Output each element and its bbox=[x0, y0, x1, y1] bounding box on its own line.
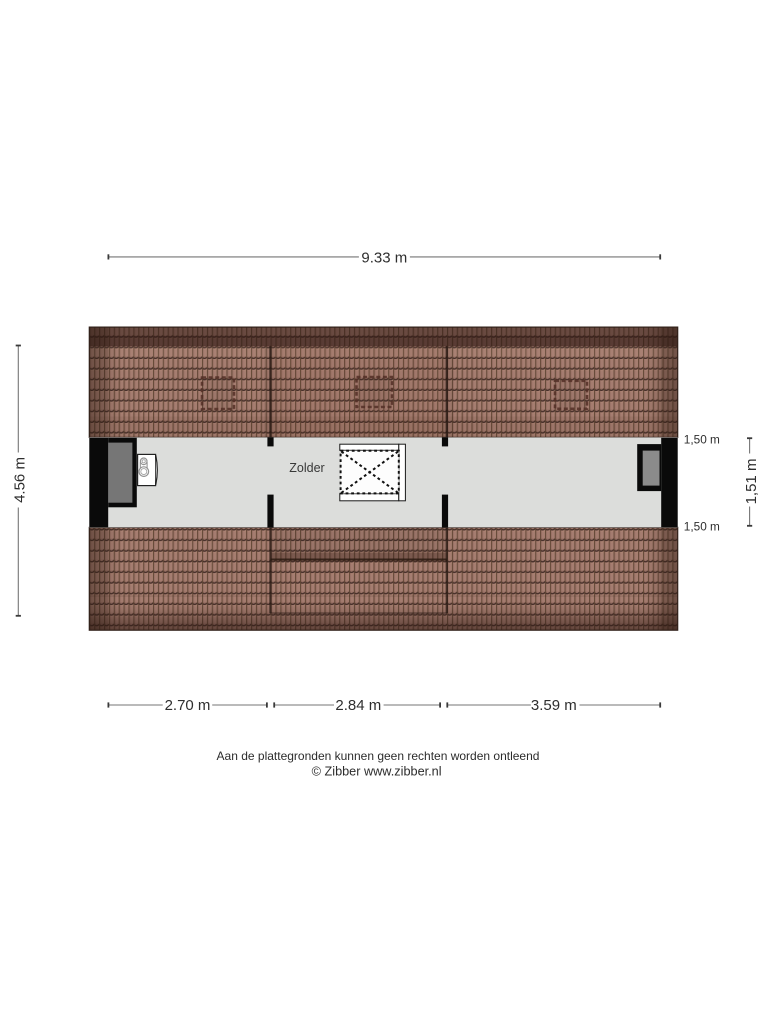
svg-text:3.59 m: 3.59 m bbox=[531, 697, 577, 714]
svg-text:1,50 m: 1,50 m bbox=[684, 520, 720, 534]
svg-text:2.70 m: 2.70 m bbox=[165, 697, 211, 714]
svg-text:Zolder: Zolder bbox=[289, 461, 324, 475]
svg-text:9.33 m: 9.33 m bbox=[361, 250, 407, 267]
svg-text:Aan de plattegronden kunnen ge: Aan de plattegronden kunnen geen rechten… bbox=[217, 749, 540, 763]
svg-text:© Zibber www.zibber.nl: © Zibber www.zibber.nl bbox=[312, 764, 442, 778]
svg-text:4.56 m: 4.56 m bbox=[12, 457, 29, 503]
svg-text:2.84 m: 2.84 m bbox=[335, 697, 381, 714]
svg-text:1,51 m: 1,51 m bbox=[743, 459, 760, 505]
svg-text:1,50 m: 1,50 m bbox=[684, 433, 720, 447]
